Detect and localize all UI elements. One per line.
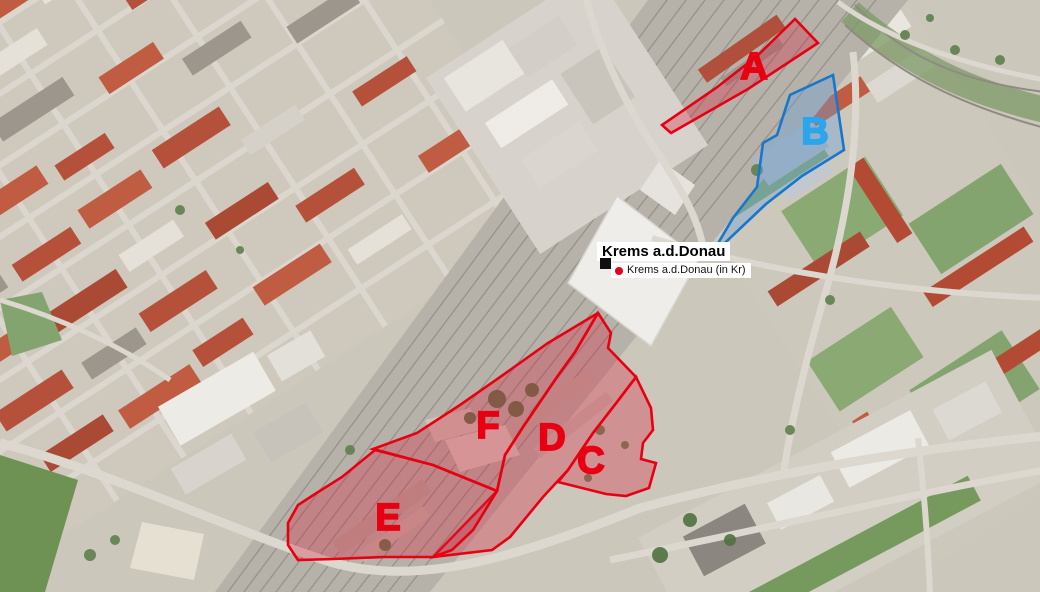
zone-f-label: F	[476, 405, 499, 447]
station-name-sublabel: Krems a.d.Donau (in Kr)	[611, 263, 751, 278]
station-marker-square	[600, 258, 611, 269]
aerial-map-view: ABCDEF Krems a.d.Donau Krems a.d.Donau (…	[0, 0, 1040, 592]
zone-d-label: D	[538, 417, 565, 459]
zone-c-label: C	[577, 440, 604, 482]
station-name-label: Krems a.d.Donau	[597, 242, 730, 261]
red-dot-icon	[615, 267, 623, 275]
station-sublabel-text: Krems a.d.Donau (in Kr)	[627, 264, 746, 277]
zone-a-label: A	[740, 46, 767, 88]
zone-overlay-layer: ABCDEF	[0, 0, 1040, 592]
zone-b-label: B	[801, 111, 828, 153]
zone-e-label: E	[375, 497, 400, 539]
zone-b-polygon	[710, 75, 844, 257]
